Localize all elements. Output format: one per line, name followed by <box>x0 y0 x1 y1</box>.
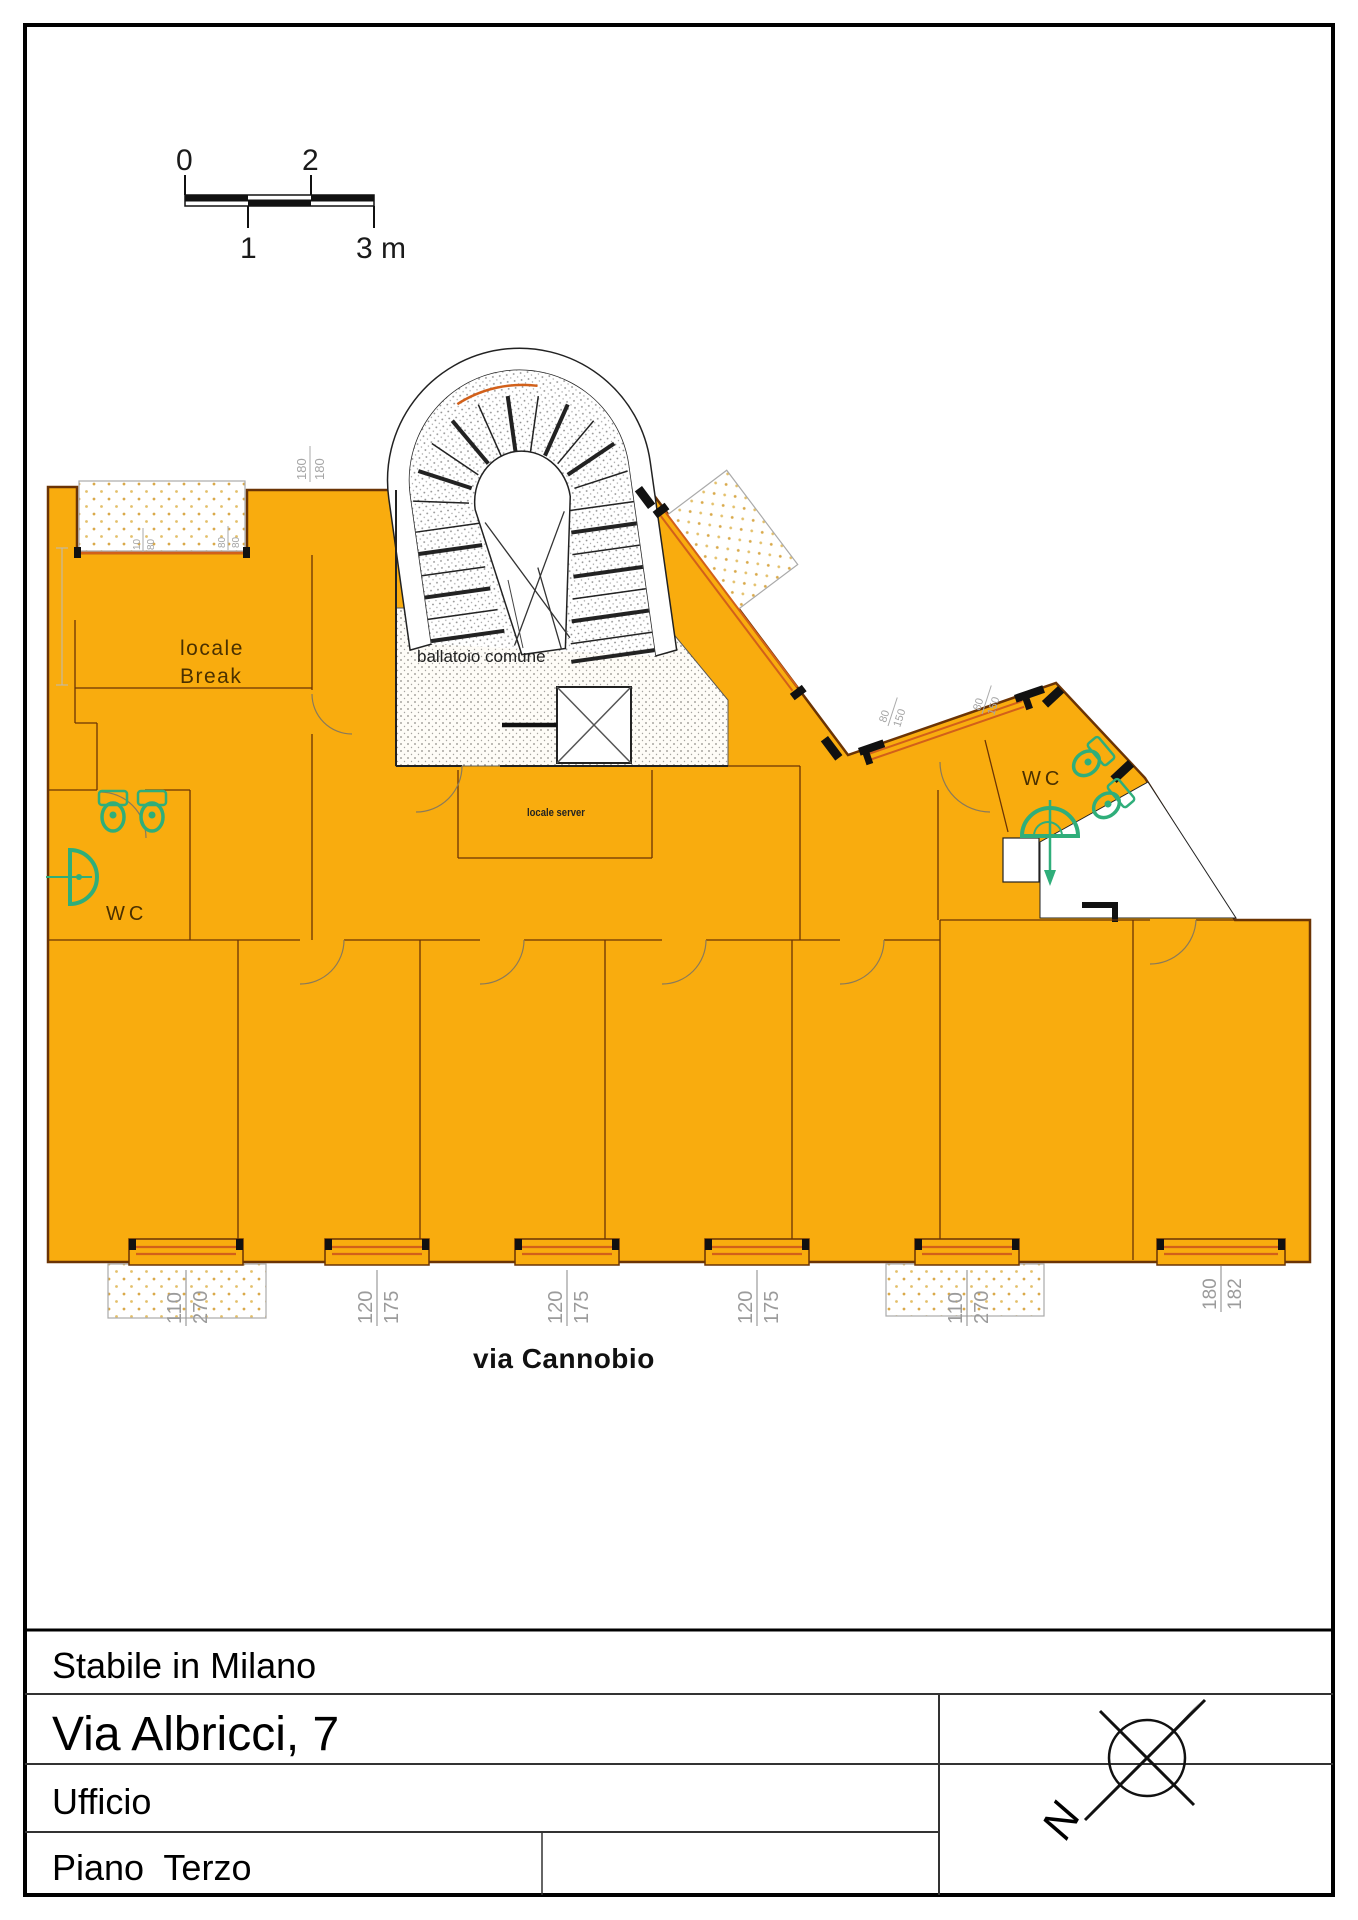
dim-text: 175 <box>571 1291 593 1324</box>
window <box>915 1239 1019 1265</box>
dim-text: 270 <box>190 1291 212 1324</box>
dim-text: 10 <box>132 538 143 550</box>
dim-text: 180 <box>294 458 309 480</box>
dim-text: 180 <box>312 458 327 480</box>
dim-180-180: 180 180 <box>294 446 327 482</box>
scale-bar: 0 2 1 3 m <box>176 144 406 265</box>
window <box>129 1239 243 1265</box>
dim-window-6: 180 182 <box>1200 1266 1246 1312</box>
scale-label-2: 2 <box>302 144 319 177</box>
label-street: via Cannobio <box>473 1343 655 1374</box>
dim-window-3: 120 175 <box>545 1270 593 1326</box>
label-wc-left: WC <box>106 903 147 925</box>
dim-window-4: 120 175 <box>735 1270 783 1326</box>
dim-text: 80 <box>217 536 228 548</box>
window <box>515 1239 619 1265</box>
balcony-bottom-left <box>108 1264 266 1318</box>
label-locale-break-2: Break <box>180 665 242 688</box>
north-arrow-icon: N <box>1032 1700 1205 1847</box>
dim-text: 120 <box>355 1291 377 1324</box>
dim-text: 175 <box>761 1291 783 1324</box>
dim-text: 120 <box>735 1291 757 1324</box>
dim-text: 150 <box>891 708 908 729</box>
title-row-building: Stabile in Milano <box>52 1645 316 1686</box>
scale-label-3m: 3 m <box>356 232 406 265</box>
scale-label-0: 0 <box>176 144 193 177</box>
north-label: N <box>1032 1795 1090 1847</box>
title-block: Stabile in Milano Via Albricci, 7 Uffici… <box>25 1630 1333 1895</box>
dim-text: 110 <box>945 1292 967 1324</box>
title-row-address: Via Albricci, 7 <box>52 1708 339 1761</box>
label-ballatoio: ballatoio comune <box>417 647 546 666</box>
window <box>325 1239 429 1265</box>
scale-label-1: 1 <box>240 232 257 265</box>
dim-text: 80 <box>146 538 157 550</box>
dim-text: 80 <box>877 709 892 724</box>
dim-80-150-a: 80 150 <box>877 694 912 731</box>
label-locale-break-1: locale <box>180 637 244 660</box>
white-slot <box>1003 838 1039 882</box>
spiral-stair <box>370 331 677 690</box>
floor-plan: locale Break ballatoio comune locale ser… <box>46 331 1310 1374</box>
dim-text: 80 <box>231 536 242 548</box>
dim-text: 270 <box>971 1291 993 1324</box>
dim-text: 120 <box>545 1291 567 1324</box>
dim-text: 110 <box>164 1292 186 1324</box>
title-row-use: Ufficio <box>52 1781 151 1822</box>
label-wc-right: WC <box>1022 768 1063 790</box>
window <box>705 1239 809 1265</box>
dim-text: 175 <box>381 1291 403 1324</box>
dim-text: 182 <box>1225 1278 1246 1310</box>
floor-plan-sheet: 0 2 1 3 m <box>0 0 1358 1920</box>
label-locale-server: locale server <box>527 807 586 819</box>
dim-window-2: 120 175 <box>355 1270 403 1326</box>
dim-text: 180 <box>1200 1278 1221 1310</box>
title-row-floor: Piano Terzo <box>52 1847 251 1888</box>
window <box>1157 1239 1285 1265</box>
